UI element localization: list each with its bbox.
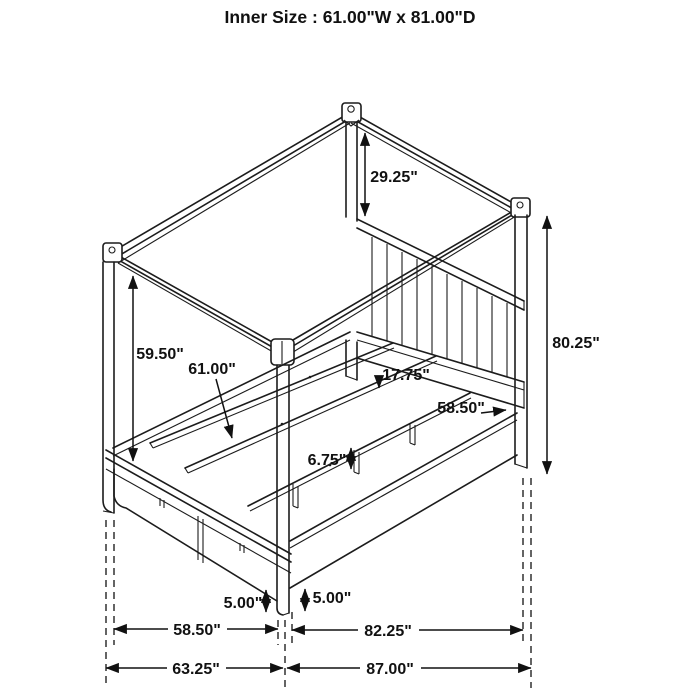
dim-label-post-below-canopy: 59.50" (136, 346, 184, 363)
diagram-canvas: Inner Size : 61.00"W x 81.00"D (0, 0, 700, 700)
slat-support-leg (354, 450, 359, 474)
dim-label-side-leg: 5.00" (313, 590, 352, 607)
canopy-corner-cap-right (511, 198, 530, 217)
slat-support-leg (410, 423, 415, 445)
canopy-bed-dimension-diagram: Inner Size : 61.00"W x 81.00"D (0, 0, 700, 700)
dim-label-slat-leg: 6.75" (308, 452, 347, 469)
bed-posts (103, 122, 527, 615)
dimension-labels: 29.25" 80.25" 59.50" 61.00" 17.75" 58.50… (136, 169, 600, 678)
canopy-frame (103, 103, 530, 365)
dim-label-footboard-leg: 5.00" (224, 595, 263, 612)
dim-label-canopy-drop: 29.25" (370, 169, 418, 186)
dim-label-headboard-width: 58.50" (437, 400, 485, 417)
dim-label-side-length: 82.25" (364, 623, 412, 640)
canopy-corner-cap-back (342, 103, 361, 126)
dim-label-platform-height: 17.75" (382, 367, 430, 384)
dim-label-footboard-width: 58.50" (173, 622, 221, 639)
footboard (106, 450, 291, 601)
dim-label-overall-depth: 87.00" (366, 661, 414, 678)
canopy-corner-cap-left (103, 243, 122, 262)
diagram-title: Inner Size : 61.00"W x 81.00"D (224, 7, 475, 27)
dim-label-inner-width: 61.00" (188, 361, 236, 378)
extension-lines (106, 478, 531, 688)
dim-label-overall-height: 80.25" (552, 335, 600, 352)
dim-leader-inner-width (216, 379, 232, 438)
dim-label-overall-width: 63.25" (172, 661, 220, 678)
